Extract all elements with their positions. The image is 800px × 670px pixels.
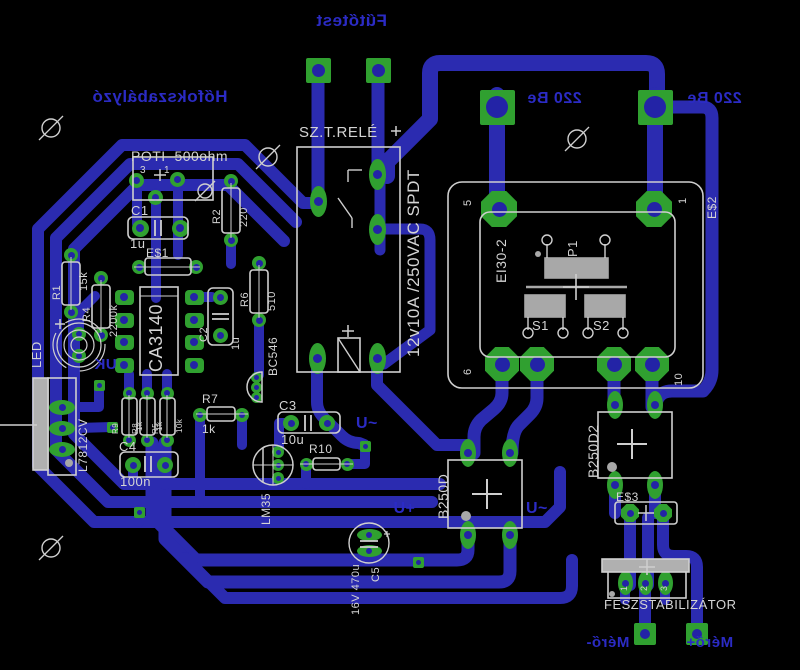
value-c3: 10u: [281, 433, 304, 446]
label-s2: S2: [593, 319, 610, 332]
label-s1: S1: [532, 319, 549, 332]
label-u-ac-right: U~: [526, 501, 548, 517]
label-r6: R6: [240, 292, 251, 307]
label-lm35: LM35: [260, 493, 272, 525]
value-r6: 510: [267, 291, 278, 311]
label-u-ac-top: U~: [356, 416, 378, 432]
label-r7: R7: [202, 393, 218, 405]
label-u-plus: +U: [393, 501, 415, 517]
label-220be-right: 220 Be: [687, 91, 742, 107]
value-c1: 1u: [130, 237, 145, 250]
label-r5: R5: [152, 423, 160, 434]
silk-circle: [349, 523, 389, 563]
value-r4: 2200k: [109, 305, 120, 337]
silk-circle: [542, 235, 552, 245]
origin-dot: [527, 297, 533, 303]
silk-line: [338, 338, 360, 372]
component-outline: [278, 412, 340, 433]
label-hofokszabalyzo: Hőfokszabályzó: [92, 88, 227, 105]
origin-dot: [65, 459, 73, 467]
fesz-pin3: 3: [660, 585, 669, 591]
label-r2: R2: [212, 209, 223, 224]
value-c4: 100n: [120, 475, 151, 488]
origin-dot: [461, 511, 471, 521]
origin-dot: [535, 251, 541, 257]
poti-pin1: 1: [164, 166, 170, 176]
silk-circle: [600, 235, 610, 245]
silk-line: [338, 198, 352, 218]
label-7812: L7812CV: [77, 418, 89, 472]
label-feszstab: FESZSTABILIZÁTOR: [604, 598, 736, 611]
value-c2: 1u: [231, 337, 242, 350]
label-relay: SZ.T.RELÉ: [299, 125, 378, 140]
value-r2: 220: [239, 207, 250, 227]
component-outline: [602, 559, 689, 572]
bc546-outline: [247, 372, 262, 402]
label-relay-rating: 12v10A /250VAC SPDT: [405, 169, 422, 357]
label-r9: R9: [112, 423, 120, 434]
label-c2: C2: [199, 327, 210, 342]
value-r7: 1k: [202, 423, 216, 435]
value-r5: 10k: [176, 419, 184, 433]
label-e2: E$2: [706, 196, 718, 219]
label-mero-minus: Mérő-: [586, 635, 629, 650]
value-r1: 15k: [79, 272, 90, 291]
pin-10: 10: [674, 373, 685, 386]
label-led: LED: [30, 341, 43, 368]
component-outline: [480, 212, 675, 357]
origin-dot: [607, 462, 617, 472]
label-c4: C4: [119, 440, 137, 453]
pin-5: 5: [463, 199, 474, 206]
poti-pin3: 3: [140, 166, 146, 176]
label-b250d: B250D: [436, 474, 450, 519]
label-p1: P1: [566, 240, 579, 257]
component-outline: [33, 378, 48, 470]
pcb-board: SZ.T.RELÉ12v10A /250VAC SPDTPOTI 500ohmC…: [0, 0, 800, 670]
pin-6: 6: [463, 368, 474, 375]
fesz-pin2: 2: [640, 585, 649, 591]
label-r8: R8: [132, 423, 140, 434]
silk-circle: [64, 330, 94, 360]
silk-circle: [71, 337, 87, 353]
label-uk: UK: [94, 357, 117, 372]
label-r1: R1: [52, 285, 63, 300]
label-bc546: BC546: [267, 337, 279, 376]
label-ei30: EI30-2: [494, 239, 508, 283]
label-r4: R4: [82, 307, 93, 322]
label-r10: R10: [309, 443, 333, 455]
value-c5: 16V 470u: [351, 564, 362, 615]
pin-1: 1: [678, 197, 689, 204]
label-c1: C1: [131, 204, 149, 217]
label-poti: POTI 500ohm: [131, 149, 228, 163]
label-e3: E$3: [616, 491, 639, 503]
label-e1: E$1: [146, 247, 169, 259]
label-b250d2: B250D2: [586, 424, 600, 478]
label-mero-plus: Mérő+: [686, 635, 733, 650]
label-c5: C5: [371, 567, 382, 582]
label-220be-left: 220 Be: [527, 91, 582, 107]
fesz-pin1: 1: [620, 585, 629, 591]
origin-dot: [587, 297, 593, 303]
label-ic: CA3140: [147, 304, 165, 372]
label-c3: C3: [279, 399, 297, 412]
label-futotest: Fűtőtest: [316, 12, 387, 29]
